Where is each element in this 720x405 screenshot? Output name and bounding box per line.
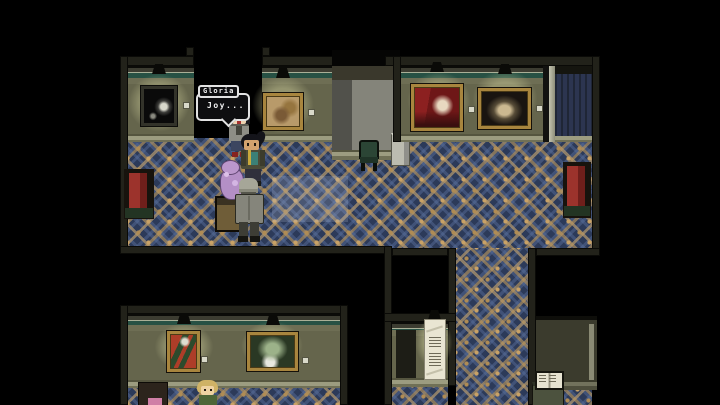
doorway-tab-right xyxy=(262,47,270,56)
npc-blonde-visitor[interactable] xyxy=(196,380,220,405)
red-rococo-painting[interactable] xyxy=(411,84,463,131)
green-chair[interactable] xyxy=(359,140,379,171)
dark-room-doorframe xyxy=(589,324,594,380)
room-b-top-border xyxy=(385,56,600,66)
carpet-scroll-room xyxy=(392,386,448,405)
room-b-right-border xyxy=(592,56,600,250)
book-text xyxy=(539,375,546,382)
dialogue-speaker-name: Gloria xyxy=(198,85,239,98)
pink-figure-partial xyxy=(148,398,162,405)
orange-mantis-painting[interactable] xyxy=(167,331,200,372)
painting-label-plaque[interactable] xyxy=(184,103,189,108)
center-block-shadow xyxy=(332,80,352,150)
room-d-left-border xyxy=(120,305,128,405)
open-book-stand[interactable] xyxy=(535,371,564,390)
scroll-fold xyxy=(426,368,443,375)
red-bench-right[interactable] xyxy=(563,162,591,218)
dark-figures-painting[interactable] xyxy=(478,88,531,129)
bench-base xyxy=(564,206,590,216)
painting-label-plaque[interactable] xyxy=(202,357,207,362)
pocket-right-top-border xyxy=(536,248,600,256)
doorway-tab-left xyxy=(186,47,194,56)
book-text xyxy=(549,375,556,382)
painting-label-plaque[interactable] xyxy=(309,110,314,115)
scroll-fold xyxy=(426,325,443,332)
carpet-south-corridor xyxy=(456,248,528,405)
bench-base xyxy=(125,208,153,218)
npc-gray-coat-visitor[interactable] xyxy=(232,178,264,242)
pocket-left-top-border xyxy=(392,248,448,256)
dialogue-bubble[interactable]: Gloria Joy... xyxy=(196,85,250,121)
game-viewport: Gloria Joy... xyxy=(0,0,720,405)
scroll-text-block xyxy=(429,353,441,368)
vertical-border-west xyxy=(384,246,392,405)
painting-label-plaque[interactable] xyxy=(537,106,542,111)
room-d-top-border xyxy=(120,305,348,314)
center-block-band xyxy=(332,66,400,80)
room-a-bottom-border xyxy=(120,246,392,254)
painting-label-plaque[interactable] xyxy=(303,358,308,363)
bench-cushion xyxy=(129,173,147,209)
wall-scroll[interactable] xyxy=(424,319,446,380)
dialogue-text: Joy... xyxy=(207,101,245,111)
dark-skeleton-painting[interactable] xyxy=(141,86,177,126)
blue-curtain xyxy=(555,74,592,136)
bench-cushion xyxy=(567,166,585,206)
green-landscape-painting[interactable] xyxy=(247,332,298,371)
room-d-right-border xyxy=(340,305,348,405)
curtain-valance xyxy=(555,66,592,74)
scroll-text-block xyxy=(429,337,441,349)
floor-light-patch xyxy=(272,176,348,222)
beige-classical-painting[interactable] xyxy=(263,93,303,130)
red-bench-left[interactable] xyxy=(124,169,154,219)
